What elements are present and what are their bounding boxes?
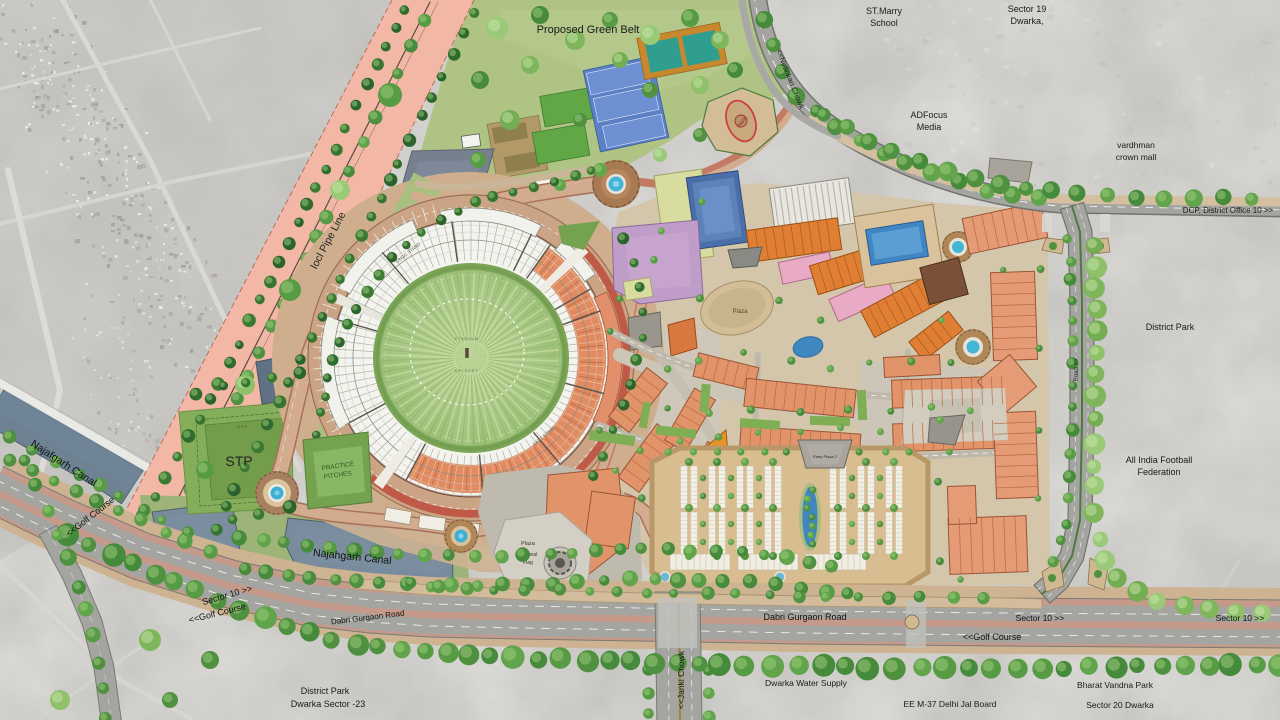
- svg-text:Road >>: Road >>: [1074, 358, 1080, 382]
- svg-text:Plaza: Plaza: [732, 309, 748, 315]
- svg-text:crown mall: crown mall: [1116, 152, 1157, 162]
- svg-text:District Park: District Park: [1146, 322, 1195, 332]
- svg-text:Sector 19: Sector 19: [1008, 4, 1047, 14]
- svg-text:Entry Plaza 2: Entry Plaza 2: [813, 454, 838, 459]
- svg-text:STADIUM: STADIUM: [455, 337, 480, 341]
- svg-text:School: School: [870, 18, 898, 28]
- svg-text:Dwarka,: Dwarka,: [1010, 16, 1043, 26]
- svg-text:Proposed Green Belt: Proposed Green Belt: [537, 24, 640, 36]
- svg-text:ADFocus: ADFocus: [910, 110, 948, 120]
- svg-text:Bharat Vandna Park: Bharat Vandna Park: [1077, 680, 1154, 690]
- svg-text:Dwarka Sector -23: Dwarka Sector -23: [291, 699, 366, 709]
- svg-text:Plaza: Plaza: [521, 541, 536, 547]
- svg-text:DCP, District Office 10 >>: DCP, District Office 10 >>: [1183, 206, 1274, 215]
- svg-text:EE M-37 Delhi Jal Board: EE M-37 Delhi Jal Board: [903, 699, 996, 709]
- svg-text:S T P: S T P: [237, 424, 247, 429]
- svg-text:Sector 10 >>: Sector 10 >>: [1016, 613, 1065, 623]
- svg-text:CRICKET: CRICKET: [455, 369, 480, 373]
- svg-text:Sector 10 >>: Sector 10 >>: [1216, 613, 1265, 623]
- svg-text:<<Golf Course: <<Golf Course: [963, 632, 1022, 642]
- svg-text:vardhman: vardhman: [1117, 140, 1155, 150]
- svg-text:STP: STP: [225, 453, 252, 469]
- svg-text:All India Football: All India Football: [1126, 455, 1193, 465]
- svg-text:Federation: Federation: [1137, 467, 1180, 477]
- svg-text:ST.Marry: ST.Marry: [866, 6, 903, 16]
- svg-text:Dwarka Water Supply: Dwarka Water Supply: [765, 678, 848, 688]
- svg-text:Dabri Gurgaon Road: Dabri Gurgaon Road: [763, 612, 846, 622]
- svg-text:District Park: District Park: [301, 686, 350, 696]
- svg-text:Media: Media: [917, 122, 942, 132]
- svg-text:Sector 20 Dwarka: Sector 20 Dwarka: [1086, 700, 1154, 710]
- svg-text:<<Janki Chowk: <<Janki Chowk: [676, 650, 686, 709]
